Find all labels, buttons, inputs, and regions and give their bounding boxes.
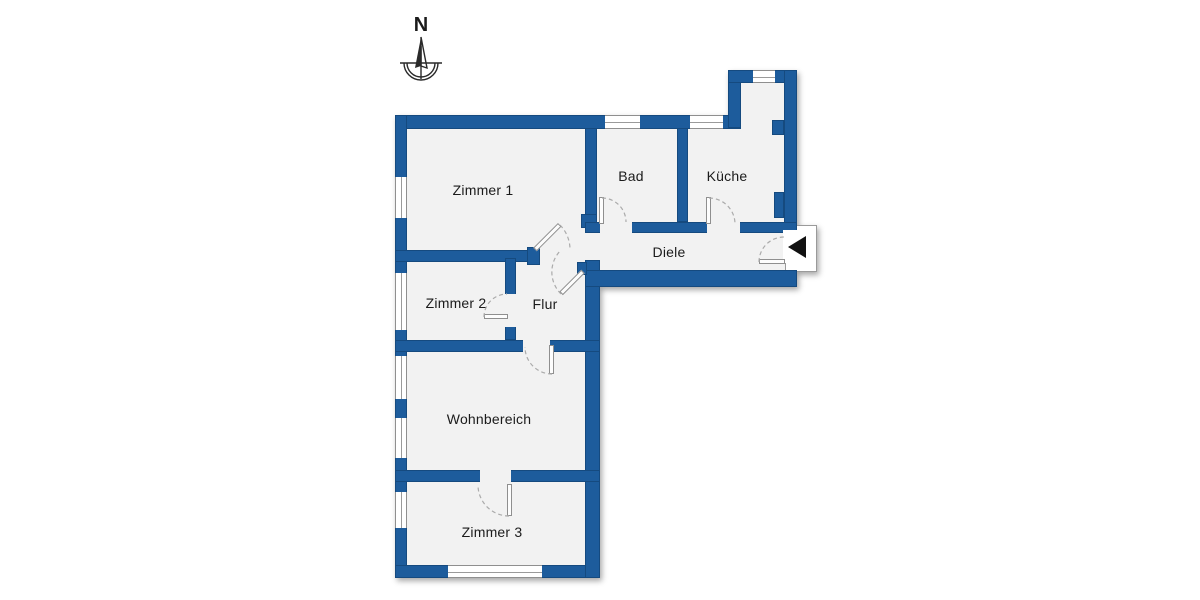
door-opening (480, 469, 511, 483)
window-icon (753, 70, 775, 83)
window-glass-line (401, 356, 402, 399)
door-opening (600, 221, 632, 234)
wall (585, 128, 597, 216)
room-label-zimmer-2: Zimmer 2 (426, 295, 487, 311)
window-icon (395, 418, 407, 458)
room-label-wohnbereich: Wohnbereich (447, 411, 531, 427)
wall (772, 120, 784, 135)
door-leaf (599, 197, 604, 224)
window-icon (605, 115, 640, 129)
door-arc-layer (0, 0, 1200, 600)
door-opening (783, 230, 798, 263)
room-label-diele: Diele (653, 244, 686, 260)
window-glass-line (448, 572, 542, 573)
wall (585, 260, 600, 578)
door-opening (523, 339, 550, 353)
wall (677, 128, 688, 222)
window-icon (448, 565, 542, 578)
window-glass-line (605, 122, 640, 123)
window-glass-line (401, 418, 402, 458)
window-icon (395, 273, 407, 330)
door-opening (707, 221, 740, 234)
room-label-zimmer-3: Zimmer 3 (462, 524, 523, 540)
wall (395, 340, 600, 352)
floor-plan-page: N Zimmer 1BadKücheDieleZimmer 2FlurWohnb… (0, 0, 1200, 600)
window-icon (395, 492, 407, 528)
window-icon (395, 356, 407, 399)
door-opening (505, 294, 516, 327)
window-glass-line (753, 77, 775, 78)
wall (784, 70, 797, 232)
door-leaf (759, 259, 785, 264)
window-glass-line (401, 177, 402, 218)
room-label-zimmer-1: Zimmer 1 (453, 182, 514, 198)
door-leaf (484, 314, 508, 319)
floor-plan (0, 0, 1200, 600)
door-leaf (706, 197, 711, 224)
window-icon (690, 115, 723, 129)
room-label-bad: Bad (618, 168, 644, 184)
wall (585, 270, 797, 287)
room-label-kueche: Küche (707, 168, 748, 184)
room-label-flur: Flur (533, 296, 558, 312)
window-icon (395, 177, 407, 218)
door-leaf (507, 484, 512, 516)
window-glass-line (690, 122, 723, 123)
window-glass-line (401, 492, 402, 528)
wall (774, 192, 784, 218)
door-leaf (549, 345, 554, 374)
window-glass-line (401, 273, 402, 330)
